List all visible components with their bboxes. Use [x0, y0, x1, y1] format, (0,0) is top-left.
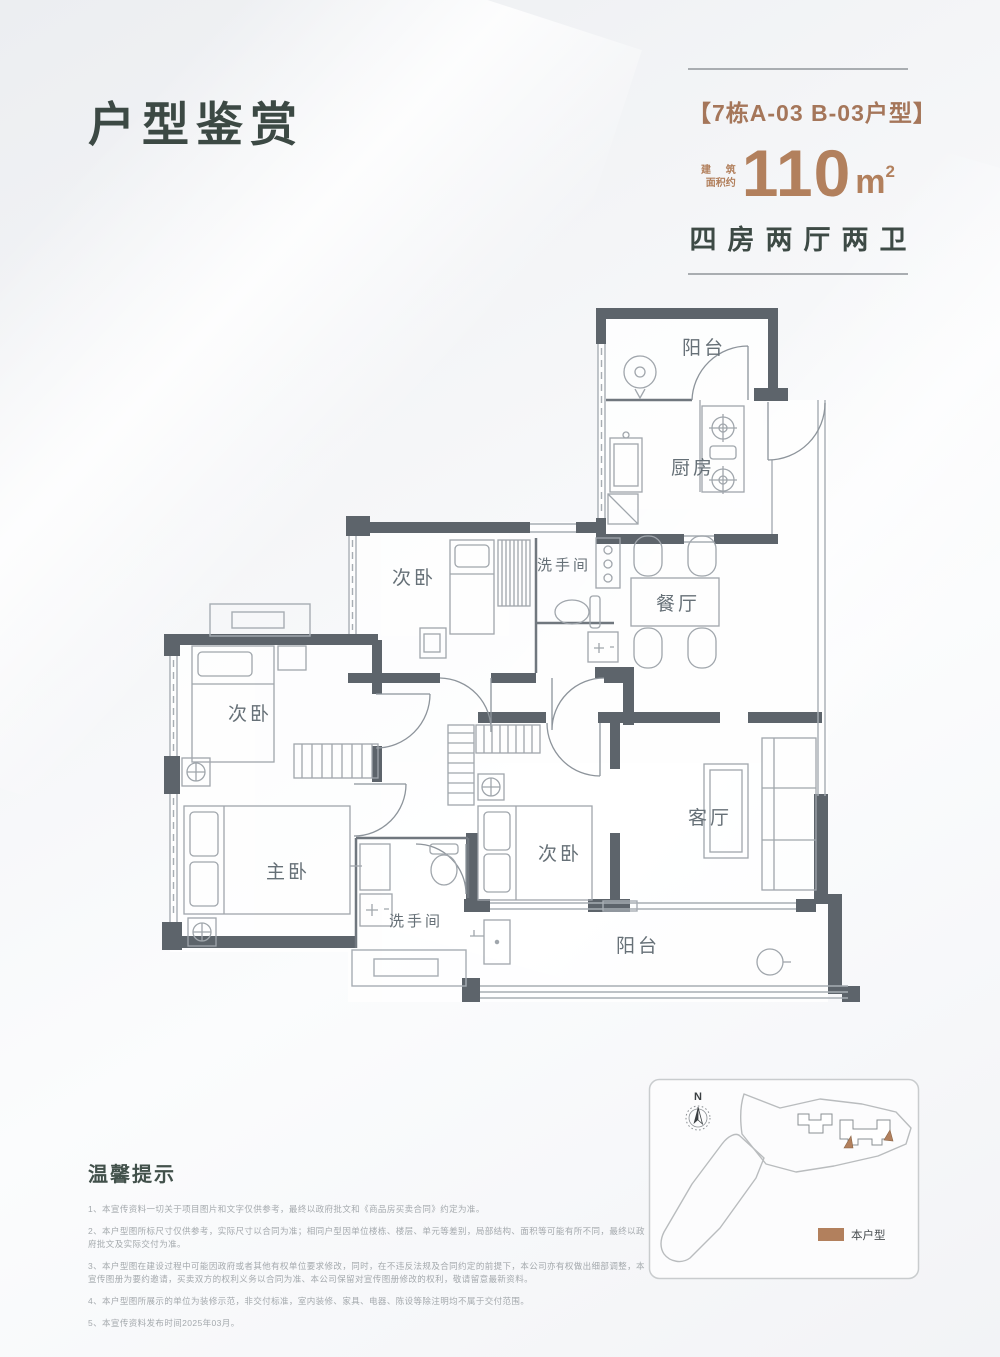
legend-label: 本户型	[851, 1228, 886, 1242]
room-label-bedroom-mid: 次卧	[538, 843, 582, 865]
notes-section: 温馨提示 1、本宣传资料一切关于项目图片和文字仅供参考，最终以政府批文和《商品房…	[88, 1158, 653, 1339]
room-label-bedroom-top: 次卧	[392, 567, 436, 589]
room-label-bath-bottom: 洗手间	[389, 913, 443, 930]
room-label-dining: 餐厅	[656, 593, 700, 615]
note-item: 1、本宣传资料一切关于项目图片和文字仅供参考，最终以政府批文和《商品房买卖合同》…	[88, 1203, 653, 1216]
site-map-border	[650, 1080, 919, 1279]
room-label-balcony-bottom: 阳台	[616, 935, 660, 957]
notes-heading: 温馨提示	[88, 1158, 653, 1187]
room-label-living: 客厅	[688, 807, 732, 829]
poster-page: 户型鉴赏 【7栋A-03 B-03户型】 建 筑 面积约 110 m 2 四房两…	[0, 0, 1000, 1357]
note-item: 4、本户型图所展示的单位为装修示范，非交付标准，室内装修、家具、电器、陈设等除注…	[88, 1295, 653, 1308]
layout-text: 四房两厅两卫	[688, 218, 919, 257]
room-label-balcony-top: 阳台	[682, 337, 726, 359]
area-unit-sup: 2	[886, 142, 895, 202]
area-prefix-line1: 建 筑	[701, 164, 742, 177]
room-label-bath-top: 洗手间	[537, 557, 591, 574]
room-label-bedroom-left: 次卧	[228, 703, 272, 725]
area-prefix: 建 筑 面积约	[701, 164, 736, 190]
area-row: 建 筑 面积约 110 m 2	[688, 142, 908, 202]
legend-swatch	[818, 1228, 844, 1241]
room-label-kitchen: 厨房	[671, 457, 715, 479]
note-item: 3、本户型图在建设过程中可能因政府或者其他有权单位要求修改，同时，在不违反法规及…	[88, 1260, 653, 1286]
floor-fill	[170, 308, 828, 1002]
floor-plan: 阳台 厨房 次卧 洗手间 餐厅 次卧 主卧 洗手间 次卧 客厅 阳台	[148, 288, 882, 1022]
spec-panel: 【7栋A-03 B-03户型】 建 筑 面积约 110 m 2 四房两厅两卫	[688, 68, 908, 275]
site-map: N 本户型	[648, 1078, 920, 1280]
unit-tag: 【7栋A-03 B-03户型】	[688, 94, 908, 128]
note-item: 2、本户型图所标尺寸仅供参考，实际尺寸以合同为准；相同户型因单位楼栋、楼层、单元…	[88, 1225, 653, 1251]
page-title: 户型鉴赏	[88, 86, 304, 155]
room-label-master: 主卧	[266, 861, 310, 883]
legend: 本户型	[818, 1228, 886, 1242]
divider-top	[688, 68, 908, 70]
note-item: 5、本宣传资料发布时间2025年03月。	[88, 1317, 653, 1330]
compass-label: N	[694, 1091, 702, 1103]
area-unit: m	[855, 162, 885, 202]
divider-bottom	[688, 273, 908, 275]
area-value: 110	[742, 144, 851, 202]
area-prefix-line2: 面积约	[706, 177, 736, 190]
